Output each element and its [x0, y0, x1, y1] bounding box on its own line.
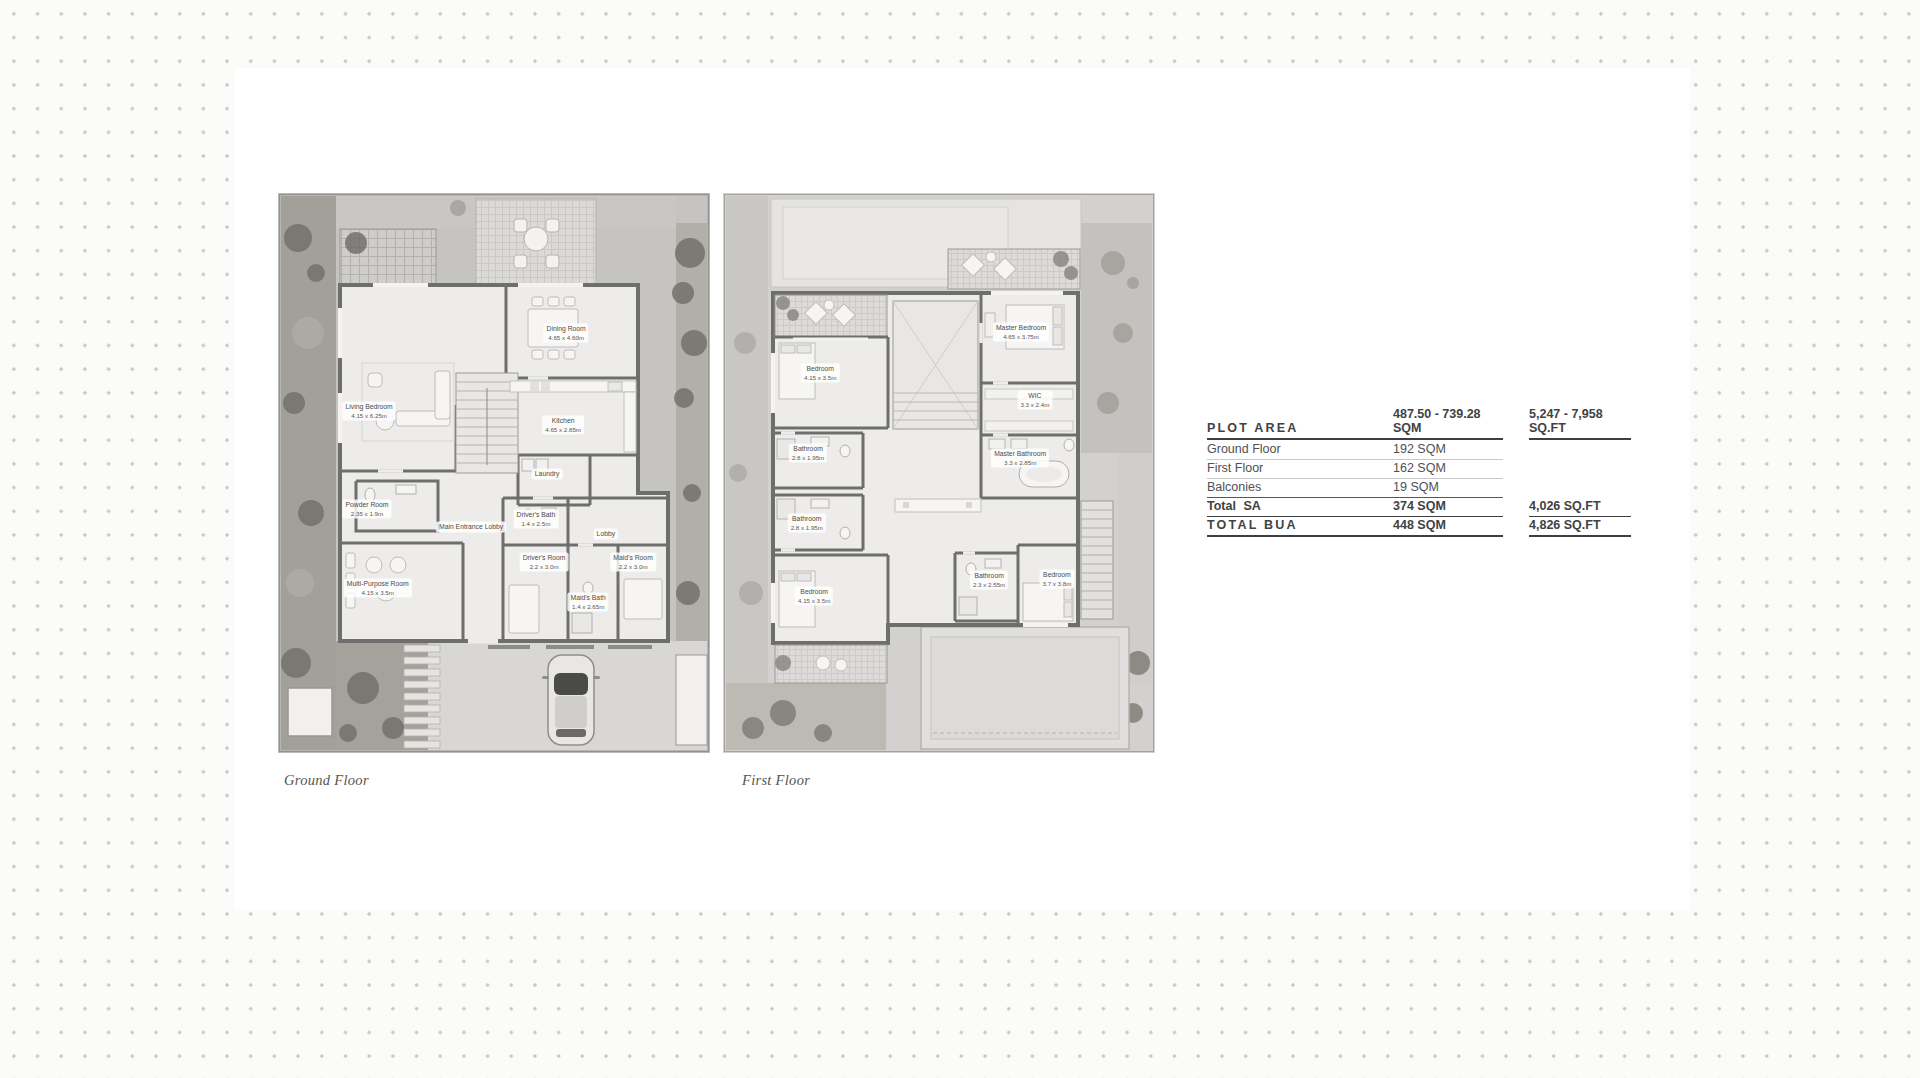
room-dims: 4.65 x 2.85m — [545, 425, 581, 433]
room-label: Maid's Bath1.4 x 2.65m — [568, 592, 609, 611]
room-name: Bedroom — [798, 588, 830, 597]
page-background: { "plans": [ { "id": "ground", "caption"… — [0, 0, 1920, 1078]
room-dims: 1.4 x 2.5m — [517, 519, 556, 527]
room-dims: 4.15 x 6.25m — [346, 411, 393, 419]
room-label: Powder Room2.35 x 1.9m — [342, 499, 391, 518]
table-row-sqm: 162 SQM — [1393, 461, 1446, 475]
room-label: Bedroom4.15 x 3.5m — [795, 587, 833, 606]
table-row-label: Total SA — [1207, 499, 1393, 513]
room-label: Driver's Room2.2 x 3.0m — [520, 553, 569, 572]
room-name: Bathroom — [792, 444, 824, 453]
room-label: Bathroom2.3 x 2.55m — [970, 571, 1008, 590]
table-row-label: First Floor — [1207, 461, 1393, 475]
room-dims: 1.4 x 2.65m — [571, 602, 606, 610]
room-label: Master Bathroom3.3 x 2.85m — [991, 448, 1049, 467]
room-name: Multi-Purpose Room — [347, 579, 409, 588]
area-table: PLOT AREA487.50 - 739.28 SQM5,247 - 7,95… — [1207, 421, 1631, 537]
room-label: Bathroom2.8 x 1.95m — [788, 513, 826, 532]
room-label: Driver's Bath1.4 x 2.5m — [514, 509, 559, 528]
table-row-main: Total SA374 SQM — [1207, 498, 1503, 517]
room-name: Powder Room — [345, 500, 388, 509]
table-row: Total SA374 SQM4,026 SQ.FT — [1207, 498, 1631, 517]
first-floor-plan: Bedroom4.15 x 3.5mMaster Bedroom4.65 x 3… — [723, 193, 1155, 753]
table-row: PLOT AREA487.50 - 739.28 SQM5,247 - 7,95… — [1207, 421, 1631, 440]
room-name: Maid's Room — [613, 554, 652, 563]
table-row: First Floor162 SQM — [1207, 460, 1631, 479]
room-name: Maid's Bath — [571, 593, 606, 602]
table-row-label: Balconies — [1207, 480, 1393, 494]
table-row-sqft-value: 5,247 - 7,958 SQ.FT — [1529, 407, 1631, 435]
room-dims: 4.65 x 3.75m — [996, 332, 1046, 340]
room-name: Bathroom — [791, 514, 823, 523]
table-row-sqft: 5,247 - 7,958 SQ.FT — [1529, 421, 1631, 440]
plan-caption-first: First Floor — [742, 772, 810, 789]
room-dims: 4.15 x 3.5m — [804, 373, 836, 381]
room-dims: 2.2 x 3.0m — [523, 562, 566, 570]
table-row-label: Ground Floor — [1207, 442, 1393, 456]
room-name: Laundry — [535, 470, 560, 479]
room-name: Bedroom — [1042, 570, 1071, 579]
table-row-main: TOTAL BUA448 SQM — [1207, 517, 1503, 536]
room-dims: 3.7 x 3.8m — [1042, 579, 1071, 587]
room-label: Bedroom3.7 x 3.8m — [1039, 569, 1074, 588]
room-name: Kitchen — [545, 416, 581, 425]
table-row-sqft: 4,826 SQ.FT — [1529, 517, 1631, 536]
room-label: Multi-Purpose Room4.15 x 3.5m — [344, 578, 412, 597]
room-name: Driver's Bath — [517, 510, 556, 519]
table-row: Balconies19 SQM — [1207, 479, 1631, 498]
room-name: Bathroom — [973, 572, 1005, 581]
room-dims: 4.15 x 3.5m — [798, 597, 830, 605]
table-row-sqm: 374 SQM — [1393, 499, 1446, 513]
room-name: Main Entrance Lobby — [439, 522, 503, 531]
table-row-sqft — [1529, 440, 1631, 459]
room-label: Bathroom2.8 x 1.95m — [789, 443, 827, 462]
plan-caption-ground: Ground Floor — [284, 772, 369, 789]
room-name: Living Bedroom — [346, 402, 393, 411]
table-row-sqm: 487.50 - 739.28 SQM — [1393, 407, 1503, 435]
table-row: TOTAL BUA448 SQM4,826 SQ.FT — [1207, 517, 1631, 536]
table-row-main: First Floor162 SQM — [1207, 460, 1503, 479]
room-dims: 3.3 x 2.85m — [994, 458, 1046, 466]
room-name: Master Bathroom — [994, 449, 1046, 458]
room-label: Maid's Room2.2 x 3.0m — [610, 553, 655, 572]
first-floor-room-labels: Bedroom4.15 x 3.5mMaster Bedroom4.65 x 3… — [723, 193, 1155, 753]
room-label: Dining Room4.65 x 4.60m — [543, 324, 588, 343]
table-row-sqft: 4,026 SQ.FT — [1529, 498, 1631, 517]
table-row-main: Ground Floor192 SQM — [1207, 440, 1503, 459]
table-row-label: PLOT AREA — [1207, 421, 1393, 435]
room-dims: 2.8 x 1.95m — [792, 453, 824, 461]
table-row-main: PLOT AREA487.50 - 739.28 SQM — [1207, 421, 1503, 440]
table-row-sqm: 19 SQM — [1393, 480, 1439, 494]
room-name: Driver's Room — [523, 554, 566, 563]
table-row-sqm: 448 SQM — [1393, 518, 1446, 532]
room-name: Master Bedroom — [996, 323, 1046, 332]
room-dims: 2.3 x 2.55m — [973, 580, 1005, 588]
room-label: Kitchen4.65 x 2.85m — [542, 415, 584, 434]
room-dims: 4.65 x 4.60m — [546, 333, 585, 341]
room-dims: 2.35 x 1.9m — [345, 509, 388, 517]
room-name: Bedroom — [804, 364, 836, 373]
ground-floor-plan: Living Bedroom4.15 x 6.25mDining Room4.6… — [278, 193, 710, 753]
table-row: Ground Floor192 SQM — [1207, 440, 1631, 459]
room-label: Lobby — [594, 529, 619, 540]
room-label: WIC3.3 x 2.4m — [1017, 391, 1052, 410]
table-row-sqft — [1529, 460, 1631, 479]
room-dims: 2.2 x 3.0m — [613, 562, 652, 570]
table-row-main: Balconies19 SQM — [1207, 479, 1503, 498]
room-name: Lobby — [597, 530, 616, 539]
room-label: Living Bedroom4.15 x 6.25m — [343, 401, 396, 420]
ground-floor-room-labels: Living Bedroom4.15 x 6.25mDining Room4.6… — [278, 193, 710, 753]
table-row-label: TOTAL BUA — [1207, 518, 1393, 532]
table-row-sqft-value: 4,026 SQ.FT — [1529, 499, 1601, 513]
room-label: Bedroom4.15 x 3.5m — [801, 363, 839, 382]
room-dims: 4.15 x 3.5m — [347, 588, 409, 596]
room-label: Master Bedroom4.65 x 3.75m — [993, 322, 1049, 341]
room-dims: 2.8 x 1.95m — [791, 523, 823, 531]
room-label: Main Entrance Lobby — [436, 521, 506, 532]
room-name: Dining Room — [546, 325, 585, 334]
table-row-sqft — [1529, 479, 1631, 498]
table-row-sqm: 192 SQM — [1393, 442, 1446, 456]
room-label: Laundry — [532, 469, 563, 480]
room-name: WIC — [1020, 392, 1049, 401]
table-row-sqft-value: 4,826 SQ.FT — [1529, 518, 1601, 532]
room-dims: 3.3 x 2.4m — [1020, 401, 1049, 409]
